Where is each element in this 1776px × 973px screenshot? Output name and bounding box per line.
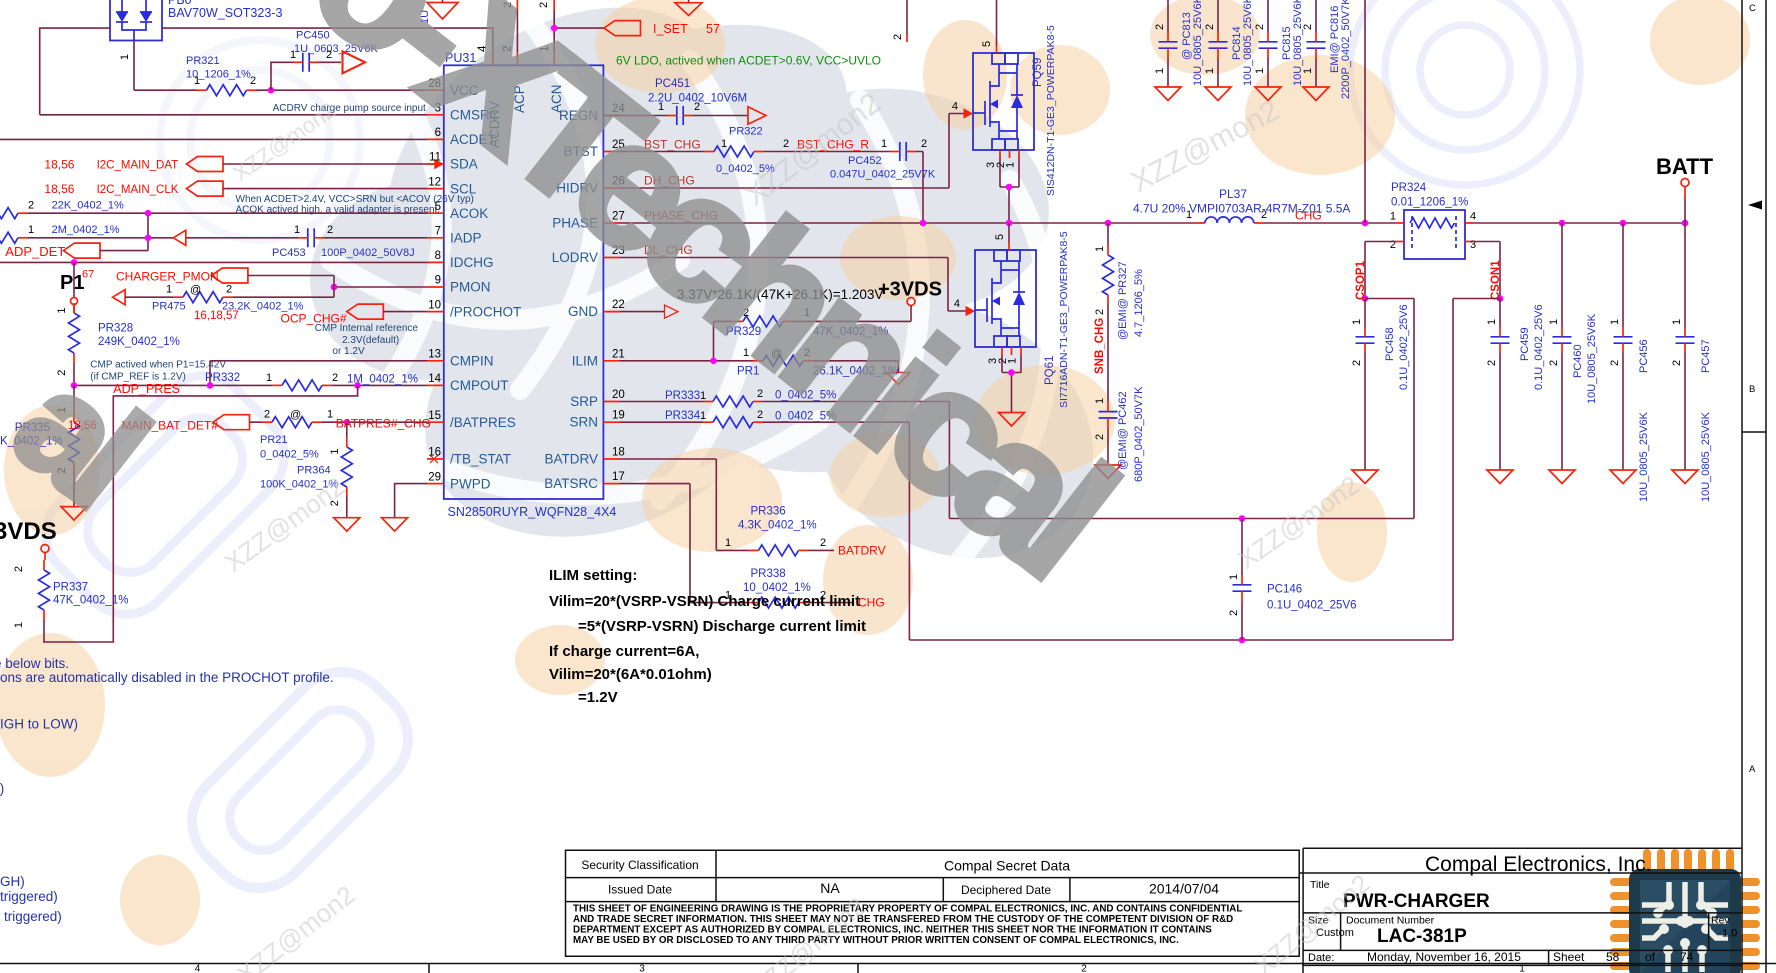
svg-text:1: 1 [290,49,296,61]
svg-text:Sheet: Sheet [1553,950,1585,964]
svg-text:2: 2 [1154,24,1166,30]
svg-text:Security Classification: Security Classification [581,858,698,872]
svg-text:SN2850RUYR_WQFN28_4X4: SN2850RUYR_WQFN28_4X4 [448,505,617,519]
svg-text:29: 29 [428,471,441,483]
svg-text:2: 2 [892,34,904,40]
svg-text:2: 2 [1302,24,1314,30]
svg-text:1: 1 [1671,319,1683,325]
svg-text:0.1U_0402_25V6: 0.1U_0402_25V6 [1398,304,1410,390]
svg-text:2: 2 [1548,360,1560,366]
svg-text:PR364: PR364 [297,465,331,477]
svg-text:PC453: PC453 [272,247,306,259]
svg-text:1: 1 [194,75,200,87]
svg-text:2: 2 [1261,209,1267,221]
svg-text:PC460: PC460 [1572,344,1584,378]
svg-text:I2C_MAIN_CLK: I2C_MAIN_CLK [97,184,179,196]
svg-text:DEPARTMENT EXCEPT AS AUTHORIZE: DEPARTMENT EXCEPT AS AUTHORIZED BY COMPA… [573,925,1212,936]
svg-text:Document Number: Document Number [1346,915,1435,927]
svg-text:1: 1 [1005,162,1017,168]
svg-text:19: 19 [612,410,625,422]
svg-text:PR475: PR475 [152,301,186,313]
svg-text:ILIM setting:: ILIM setting: [549,567,637,584]
svg-text:IDCHG: IDCHG [450,255,494,270]
svg-text:P1: P1 [60,272,84,294]
svg-text:5: 5 [981,41,993,47]
svg-text:IADP: IADP [450,231,482,246]
svg-text:1: 1 [700,410,706,422]
svg-text:BAV70W_SOT323-3: BAV70W_SOT323-3 [168,6,282,20]
svg-text:+3VDS: +3VDS [0,518,57,545]
svg-text:1: 1 [1204,68,1216,74]
svg-text:21: 21 [612,348,625,360]
svg-text:2: 2 [921,138,927,150]
svg-text:SNB_CHG: SNB_CHG [1094,318,1106,374]
svg-text:5: 5 [435,201,441,213]
svg-text:16: 16 [428,447,441,459]
svg-text:ACOK: ACOK [450,206,488,221]
svg-text:ADP_DET: ADP_DET [5,244,65,259]
svg-text:2: 2 [1254,24,1266,30]
svg-text:THIS SHEET OF ENGINEERING DRAW: THIS SHEET OF ENGINEERING DRAWING IS THE… [573,904,1242,915]
svg-text:I2C_MAIN_DAT: I2C_MAIN_DAT [97,160,179,172]
svg-text:1: 1 [294,224,300,236]
svg-text:0.01_1206_1%: 0.01_1206_1% [1391,197,1468,209]
svg-text:BATDRV: BATDRV [838,544,886,558]
svg-text:A: A [1749,764,1756,775]
svg-text:4: 4 [952,101,958,113]
svg-text:CHG: CHG [858,596,885,610]
svg-text:6V LDO, actived when ACDET>0.6: 6V LDO, actived when ACDET>0.6V, VCC>UVL… [616,54,881,68]
svg-text:1: 1 [329,448,341,454]
svg-text:@: @ [190,284,201,296]
svg-text:1: 1 [1186,209,1192,221]
svg-text:PL37: PL37 [1219,187,1247,201]
svg-text:MAY BE USED BY OR DISCLOSED TO: MAY BE USED BY OR DISCLOSED TO ANY THIRD… [573,935,1179,946]
svg-text:PC459: PC459 [1519,327,1531,361]
svg-text:18: 18 [612,447,625,459]
svg-text:1: 1 [1390,211,1396,223]
svg-text:triggered): triggered) [4,909,62,924]
svg-text:PR324: PR324 [1391,182,1427,194]
svg-text:1: 1 [1302,68,1314,74]
svg-text:7: 7 [435,226,441,238]
svg-text:10U_0805_25V6K: 10U_0805_25V6K [1638,411,1650,502]
svg-text:PR337: PR337 [53,582,88,594]
svg-text:16,18,57: 16,18,57 [194,310,239,322]
svg-text:2200P_0402_50V7K: 2200P_0402_50V7K [1340,0,1352,99]
svg-text:or 1.2V: or 1.2V [332,346,365,357]
svg-text:2.3V(default): 2.3V(default) [342,335,399,346]
svg-text:1: 1 [1548,319,1560,325]
svg-text:PR338: PR338 [751,568,786,580]
svg-text:triggered): triggered) [0,889,58,904]
svg-text:If charge current=6A,: If charge current=6A, [549,643,699,660]
svg-text:1: 1 [1609,319,1621,325]
svg-text:0_0402_5%: 0_0402_5% [260,449,319,461]
svg-text:2: 2 [1609,360,1621,366]
svg-text:BATSRC: BATSRC [544,476,598,491]
svg-text:47K_0402_1%: 47K_0402_1% [53,595,128,607]
svg-text:BATT: BATT [1656,154,1714,179]
svg-text:249K_0402_1%: 249K_0402_1% [98,336,180,348]
svg-text:1.0: 1.0 [1722,928,1737,940]
svg-text:2: 2 [757,409,763,421]
svg-text:8: 8 [435,250,441,262]
svg-text:57: 57 [706,22,720,36]
svg-text:2: 2 [1081,964,1087,973]
svg-text:2: 2 [1228,610,1240,616]
svg-text:PR332: PR332 [205,372,240,384]
svg-text:CMP Internal reference: CMP Internal reference [315,323,419,334]
svg-text:@: @ [290,409,301,421]
svg-text:1: 1 [28,224,34,236]
svg-text:14: 14 [428,373,441,385]
svg-text:1: 1 [56,307,68,313]
svg-text:2M_0402_1%: 2M_0402_1% [52,224,120,236]
svg-text:17: 17 [612,471,625,483]
svg-text:of: of [1645,950,1656,964]
svg-text:1: 1 [1094,398,1106,404]
svg-text:CMPOUT: CMPOUT [450,378,509,393]
svg-text:2: 2 [332,372,338,384]
svg-text:5: 5 [994,234,1006,240]
svg-text:10U_0805_25V6K: 10U_0805_25V6K [1700,411,1712,502]
svg-text:Date:: Date: [1308,952,1334,964]
svg-text:C: C [1749,3,1756,14]
svg-text:2: 2 [226,284,232,296]
svg-text:4: 4 [1470,211,1476,223]
svg-text:4.3K_0402_1%: 4.3K_0402_1% [738,520,817,532]
svg-text:2: 2 [820,537,826,549]
svg-text:GH): GH) [0,874,25,889]
svg-text:0.1U_0402_25V6: 0.1U_0402_25V6 [1533,304,1545,390]
svg-text:1: 1 [881,138,887,150]
svg-text:PR333: PR333 [665,390,700,402]
svg-text:13: 13 [428,349,441,361]
svg-text:CHG: CHG [1295,209,1322,223]
svg-text:2: 2 [264,409,270,421]
svg-text:1: 1 [119,54,131,60]
svg-text:BATPRES#_CHG: BATPRES#_CHG [336,417,431,431]
svg-text:BATDRV: BATDRV [544,452,598,467]
svg-text:15: 15 [428,410,441,422]
svg-text:Issued Date: Issued Date [608,883,672,897]
svg-text:1: 1 [700,390,706,402]
svg-text:100P_0402_50V8J: 100P_0402_50V8J [321,247,415,259]
svg-text:1: 1 [1254,68,1266,74]
svg-text:9: 9 [435,275,441,287]
svg-text:2: 2 [13,566,25,572]
svg-text:Title: Title [1310,879,1330,891]
svg-text:PC146: PC146 [1267,584,1302,596]
svg-text:PQ59: PQ59 [1032,58,1044,87]
svg-text:3: 3 [639,964,645,973]
svg-text:PWPD: PWPD [450,476,491,491]
svg-text:PC458: PC458 [1384,327,1396,361]
svg-text:/TB_STAT: /TB_STAT [450,452,511,467]
svg-text:1: 1 [1094,246,1106,252]
svg-text:2: 2 [1204,24,1216,30]
svg-text:22K_0402_1%: 22K_0402_1% [52,200,124,212]
svg-text:4.7_1206_5%: 4.7_1206_5% [1133,269,1145,337]
svg-text:1: 1 [1486,319,1498,325]
svg-text:2: 2 [250,75,256,87]
svg-text:1: 1 [166,284,172,296]
svg-text:0.047U_0402_25V7K: 0.047U_0402_25V7K [830,169,936,181]
svg-text:2: 2 [28,200,34,212]
svg-text:SRP: SRP [570,394,598,409]
svg-text:PC452: PC452 [848,155,882,167]
svg-text:Deciphered Date: Deciphered Date [961,883,1051,897]
svg-text:CMPIN: CMPIN [450,354,494,369]
svg-text:PR21: PR21 [260,434,288,446]
svg-text:Vilim=20*(6A*0.01ohm): Vilim=20*(6A*0.01ohm) [549,666,712,683]
svg-text:10U_0805_25V6K: 10U_0805_25V6K [1586,313,1598,404]
svg-text:1: 1 [1351,319,1363,325]
svg-text:PB0: PB0 [168,0,192,7]
svg-text:SRN: SRN [569,415,598,430]
svg-text:18,56: 18,56 [44,158,74,172]
svg-text:CHARGER_PMON: CHARGER_PMON [116,270,219,284]
svg-text:1: 1 [1519,964,1525,973]
svg-text:10: 10 [428,299,441,311]
svg-text:AND TRADE SECRET INFORMATION.: AND TRADE SECRET INFORMATION. THIS SHEET… [573,914,1233,925]
svg-text:0.1U_0402_25V6: 0.1U_0402_25V6 [1267,600,1357,612]
svg-text:IGH to LOW): IGH to LOW) [0,717,78,732]
svg-text:@EMI@ PR327: @EMI@ PR327 [1117,261,1129,340]
svg-text:1: 1 [327,409,333,421]
svg-text:1M_0402_1%: 1M_0402_1% [347,374,418,386]
svg-text:Compal Secret Data: Compal Secret Data [944,858,1070,874]
svg-text:PC457: PC457 [1700,339,1712,373]
svg-text:1: 1 [725,537,731,549]
svg-text:67: 67 [82,269,94,281]
svg-text:58: 58 [1606,950,1620,964]
svg-text:2: 2 [1094,309,1106,315]
svg-text:1: 1 [1228,574,1240,580]
svg-text:PR334: PR334 [665,410,701,422]
svg-text:12: 12 [428,176,441,188]
svg-text:SI7716ADN-T1-GE3_POWERPAK8-5: SI7716ADN-T1-GE3_POWERPAK8-5 [1058,231,1070,408]
svg-text:B: B [1749,384,1755,395]
svg-text:2: 2 [1486,360,1498,366]
svg-text:SIS412DN-T1-GE3_POWERPAK8-5: SIS412DN-T1-GE3_POWERPAK8-5 [1045,25,1057,196]
svg-text:2: 2 [327,224,333,236]
svg-text:c): c) [0,781,4,796]
svg-text:CSON1: CSON1 [1490,260,1502,300]
svg-text:LAC-381P: LAC-381P [1377,926,1467,947]
svg-text:PR321: PR321 [186,55,220,67]
svg-text:Monday, November 16, 2015: Monday, November 16, 2015 [1367,950,1521,964]
svg-text:Compal Electronics, Inc.: Compal Electronics, Inc. [1425,853,1651,876]
svg-text:=1.2V: =1.2V [578,689,618,706]
svg-text:4: 4 [195,964,201,973]
svg-text:1: 1 [1154,68,1166,74]
svg-text:/BATPRES: /BATPRES [450,415,516,430]
svg-text:PR336: PR336 [751,506,786,518]
svg-text:74: 74 [1680,950,1694,964]
svg-text:PC456: PC456 [1638,339,1650,373]
svg-text:10U_0805_25V6K: 10U_0805_25V6K [1192,0,1204,86]
svg-text:10U_0805_25V6K: 10U_0805_25V6K [1242,0,1254,86]
svg-text:e below bits.: e below bits. [0,656,69,671]
svg-text:1: 1 [13,622,25,628]
svg-text:GND: GND [568,304,598,319]
svg-text:20: 20 [612,389,625,401]
svg-text:PR328: PR328 [98,323,133,335]
svg-text:I_SET: I_SET [653,22,688,36]
svg-text:18,56: 18,56 [44,182,74,196]
svg-text:ons are automatically disabled: ons are automatically disabled in the PR… [0,670,334,685]
svg-text:Vilim=20*(VSRP-VSRN) Charge: Vilim=20*(VSRP-VSRN) Charge current limi… [549,593,860,610]
svg-text:PMON: PMON [450,280,491,295]
svg-text:680P_0402_50V7K: 680P_0402_50V7K [1133,386,1145,482]
svg-text:2: 2 [1351,360,1363,366]
svg-text:1: 1 [266,372,272,384]
svg-text:/PROCHOT: /PROCHOT [450,304,521,319]
svg-text:2: 2 [1671,360,1683,366]
svg-text:ILIM: ILIM [572,353,598,368]
svg-text:2014/07/04: 2014/07/04 [1149,881,1219,897]
svg-text:Rev: Rev [1711,915,1730,927]
svg-text:CSOP1: CSOP1 [1355,260,1367,300]
svg-text:NA: NA [820,880,840,896]
svg-text:=5*(VSRP-VSRN) Discharge cu: =5*(VSRP-VSRN) Discharge current limit [578,618,866,635]
